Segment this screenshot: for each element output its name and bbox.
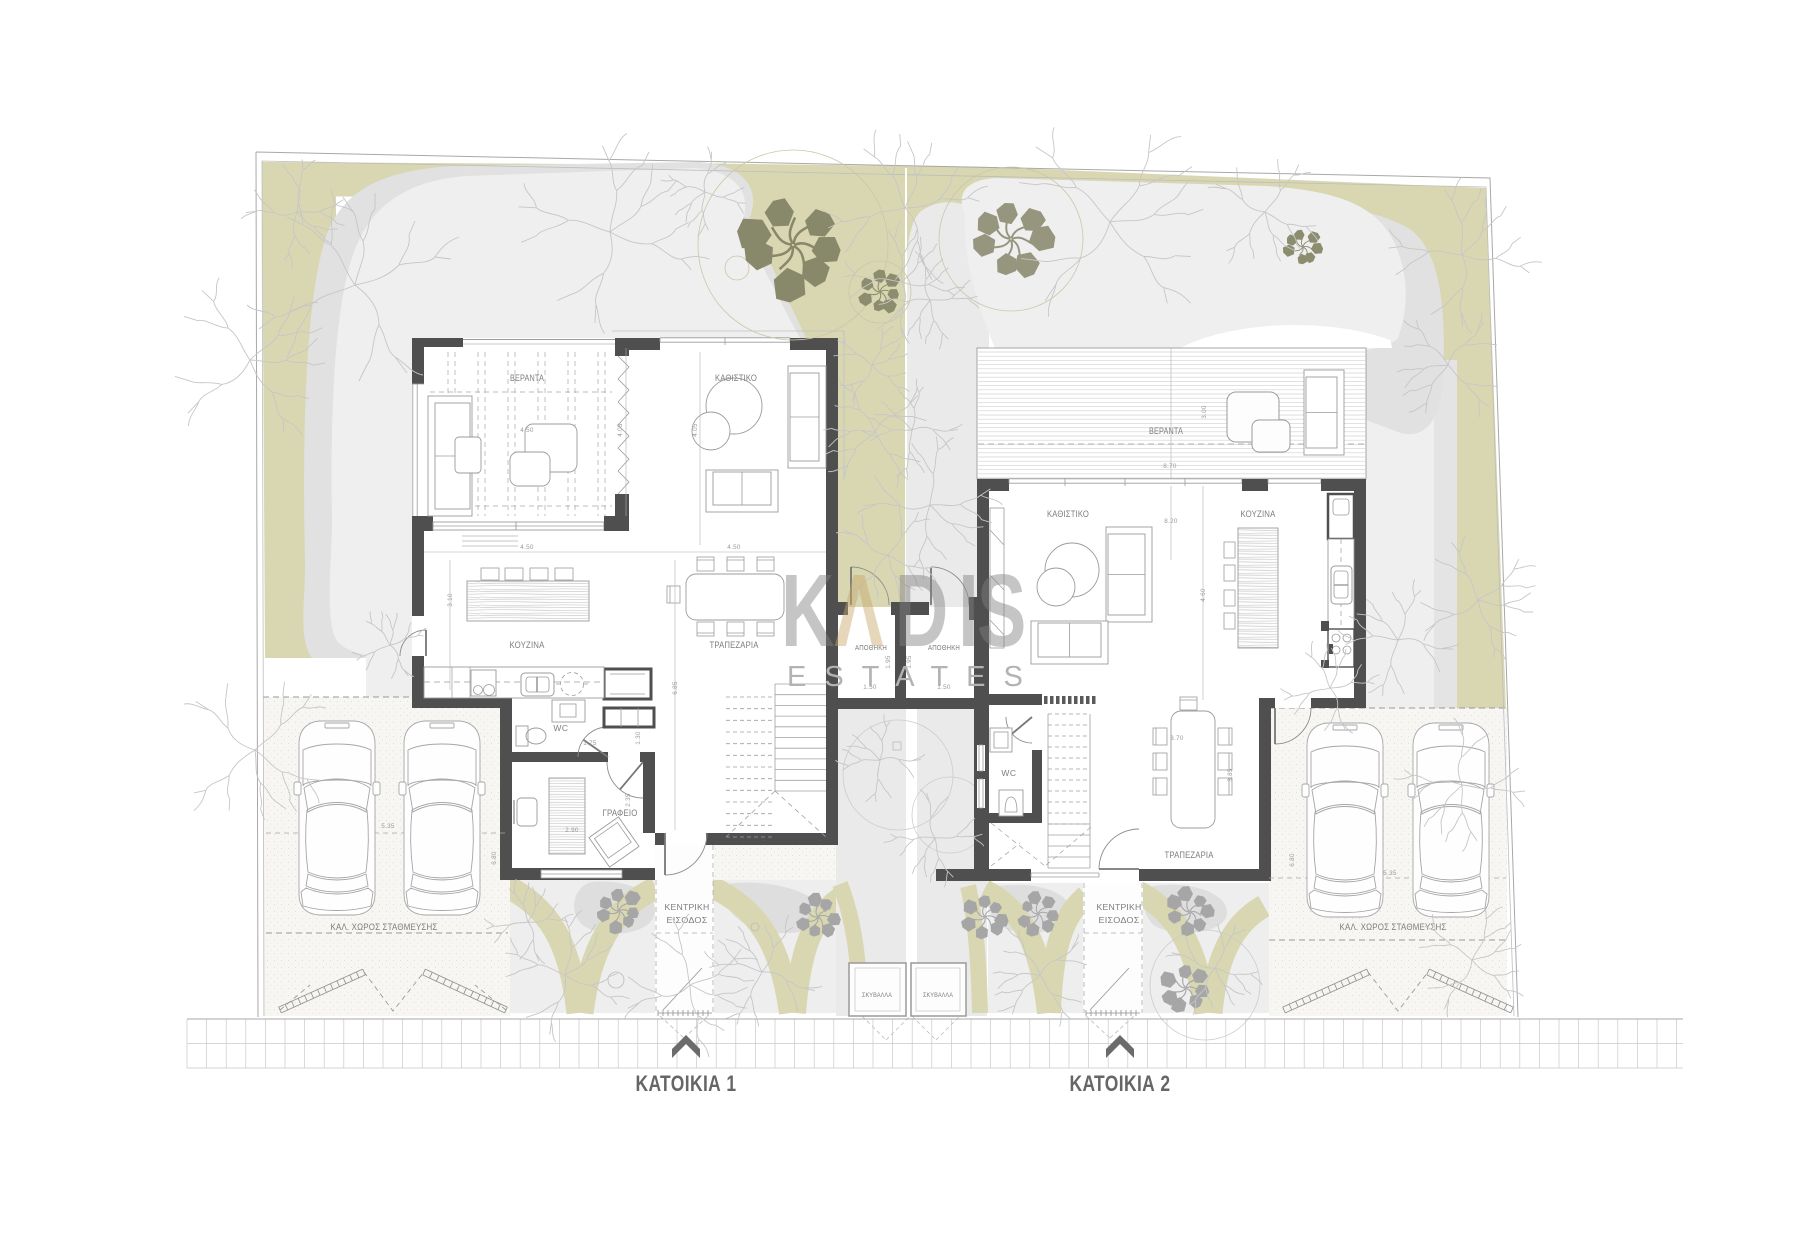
svg-text:S: S	[977, 554, 1026, 669]
svg-text:ΒΕΡΑΝΤΑ: ΒΕΡΑΝΤΑ	[510, 373, 544, 383]
svg-text:ΤΡΑΠΕΖΑΡΙΑ: ΤΡΑΠΕΖΑΡΙΑ	[1165, 850, 1214, 860]
svg-text:2.90: 2.90	[565, 827, 579, 834]
svg-text:5.35: 5.35	[1383, 870, 1397, 877]
svg-text:D: D	[895, 554, 949, 669]
svg-text:ΣΚΥΒΑΛΛΑ: ΣΚΥΒΑΛΛΑ	[923, 992, 954, 999]
svg-text:ΚΑΤΟΙΚΙΑ 2: ΚΑΤΟΙΚΙΑ 2	[1070, 1071, 1171, 1096]
svg-text:8.70: 8.70	[1163, 463, 1177, 470]
svg-text:1.75: 1.75	[583, 740, 597, 747]
svg-text:3.00: 3.00	[1201, 405, 1208, 419]
svg-text:WC: WC	[553, 723, 568, 733]
svg-text:1.30: 1.30	[635, 731, 642, 745]
svg-text:ΣΚΥΒΑΛΛΑ: ΣΚΥΒΑΛΛΑ	[862, 992, 893, 999]
svg-text:4.50: 4.50	[520, 427, 534, 434]
svg-text:ΚΑΛ. ΧΩΡΟΣ ΣΤΑΘΜΕΥΣΗΣ: ΚΑΛ. ΧΩΡΟΣ ΣΤΑΘΜΕΥΣΗΣ	[1340, 922, 1447, 932]
svg-text:4.05: 4.05	[692, 423, 699, 437]
svg-text:3.70: 3.70	[1170, 735, 1184, 742]
svg-text:3.10: 3.10	[447, 593, 454, 607]
svg-text:ΓΡΑΦΕΙΟ: ΓΡΑΦΕΙΟ	[603, 808, 638, 818]
svg-text:ΚΑΘΙΣΤΙΚΟ: ΚΑΘΙΣΤΙΚΟ	[715, 373, 757, 383]
svg-text:2.35: 2.35	[625, 793, 632, 807]
svg-text:ESTATES: ESTATES	[787, 661, 1041, 693]
svg-text:ΚΕΝΤΡΙΚΗ: ΚΕΝΤΡΙΚΗ	[665, 902, 710, 912]
svg-text:Λ: Λ	[834, 554, 884, 669]
svg-text:K: K	[781, 554, 835, 669]
svg-text:WC: WC	[1001, 768, 1016, 778]
svg-text:3.85: 3.85	[1227, 768, 1234, 782]
svg-text:I: I	[958, 554, 979, 669]
svg-text:6.85: 6.85	[672, 681, 679, 695]
svg-text:4.05: 4.05	[617, 423, 624, 437]
svg-text:ΚΑΤΟΙΚΙΑ 1: ΚΑΤΟΙΚΙΑ 1	[636, 1071, 737, 1096]
svg-text:6.80: 6.80	[1289, 853, 1296, 867]
svg-text:ΚΑΘΙΣΤΙΚΟ: ΚΑΘΙΣΤΙΚΟ	[1047, 509, 1089, 519]
svg-text:4.50: 4.50	[520, 544, 534, 551]
svg-text:ΚΟΥΖΙΝΑ: ΚΟΥΖΙΝΑ	[1241, 509, 1276, 519]
svg-text:ΒΕΡΑΝΤΑ: ΒΕΡΑΝΤΑ	[1149, 426, 1183, 436]
svg-text:ΚΟΥΖΙΝΑ: ΚΟΥΖΙΝΑ	[510, 640, 545, 650]
svg-text:ΤΡΑΠΕΖΑΡΙΑ: ΤΡΑΠΕΖΑΡΙΑ	[710, 640, 759, 650]
svg-text:4.50: 4.50	[727, 544, 741, 551]
svg-text:ΚΑΛ. ΧΩΡΟΣ ΣΤΑΘΜΕΥΣΗΣ: ΚΑΛ. ΧΩΡΟΣ ΣΤΑΘΜΕΥΣΗΣ	[331, 922, 438, 932]
svg-text:6.80: 6.80	[491, 851, 498, 865]
svg-text:ΚΕΝΤΡΙΚΗ: ΚΕΝΤΡΙΚΗ	[1097, 902, 1142, 912]
svg-text:ΕΙΣΟΔΟΣ: ΕΙΣΟΔΟΣ	[1099, 915, 1140, 925]
svg-text:5.35: 5.35	[381, 823, 395, 830]
svg-text:4.60: 4.60	[1200, 588, 1207, 602]
